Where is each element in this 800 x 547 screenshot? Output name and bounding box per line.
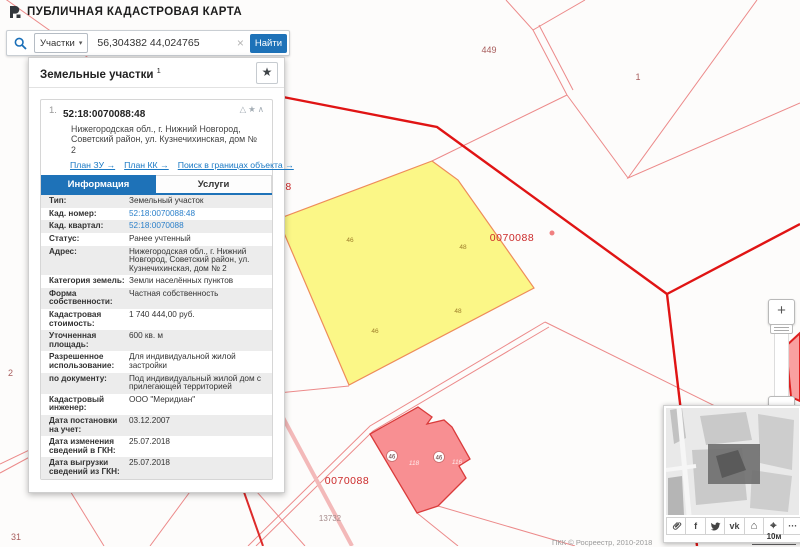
row-label: Кад. номер: <box>41 209 127 220</box>
row-value: 25.07.2018 <box>127 458 272 477</box>
star-icon[interactable]: ★ <box>248 104 258 114</box>
results-count: 1 <box>157 66 161 75</box>
row-label: Кадастровая стоимость: <box>41 310 127 329</box>
row-value: Для индивидуальной жилой застройки <box>127 352 272 371</box>
table-row: Кад. квартал:52:18:0070088 <box>41 220 272 233</box>
table-row: Уточненная площадь:600 кв. м <box>41 330 272 351</box>
building-number-label: 118 <box>409 460 420 467</box>
result-address: Нижегородская обл., г. Нижний Новгород, … <box>71 124 260 155</box>
result-index: 1. <box>49 105 57 116</box>
search-within-object-link[interactable]: Поиск в границах объекта → <box>178 160 294 170</box>
map-label-point: 48 <box>454 308 462 315</box>
row-value: 25.07.2018 <box>127 437 272 456</box>
table-row: Дата постановки на учет:03.12.2007 <box>41 415 272 436</box>
building-number-label: 116 <box>452 459 463 466</box>
map-label: 13732 <box>319 514 342 523</box>
map-label: 449 <box>481 45 496 55</box>
parcel-info-table: Тип:Земельный участок Кад. номер:52:18:0… <box>41 195 272 478</box>
map-label-point: 48 <box>459 244 467 251</box>
table-row: Дата выгрузки сведений из ГКН:25.07.2018 <box>41 457 272 478</box>
row-value: Под индивидуальный жилой дом с прилегающ… <box>127 374 272 393</box>
result-cad-number: 52:18:0070088:48 <box>63 109 145 120</box>
table-row: Статус:Ранее учтенный <box>41 233 272 246</box>
minimap: f vk ⌂ ⌖ ··· <box>663 405 800 543</box>
results-panel: Земельные участки 1 ★ 1. 52:18:0070088:4… <box>28 57 285 493</box>
table-row: Кадастровый инженер:ООО "Меридиан" <box>41 394 272 415</box>
row-value: 600 кв. м <box>127 331 272 350</box>
row-label: Категория земель: <box>41 276 127 287</box>
row-value: Ранее учтенный <box>127 234 272 245</box>
map-scale: 10м <box>752 532 796 545</box>
zoom-slider-handle[interactable] <box>770 324 793 334</box>
table-row: Тип:Земельный участок <box>41 195 272 208</box>
search-submit-button[interactable]: Найти <box>250 34 287 53</box>
favorites-button[interactable]: ★ <box>256 62 278 84</box>
row-label: Кад. квартал: <box>41 221 127 232</box>
twitter-icon[interactable] <box>705 517 725 535</box>
search-category-label: Участки <box>40 38 75 49</box>
zoom-slider-track[interactable] <box>774 324 789 400</box>
plan-kk-link[interactable]: План КК → <box>124 160 169 170</box>
warning-icon[interactable]: △ <box>240 104 249 114</box>
link-icon[interactable] <box>666 517 686 535</box>
map-point-marker <box>550 231 555 236</box>
table-row: Разрешенное использование:Для индивидуал… <box>41 351 272 372</box>
row-value-link[interactable]: 52:18:0070088:48 <box>127 209 272 220</box>
row-value: Земли населённых пунктов <box>127 276 272 287</box>
map-label: 1 <box>635 72 640 82</box>
row-label: Разрешенное использование: <box>41 352 127 371</box>
facebook-icon[interactable]: f <box>685 517 705 535</box>
row-label: Дата постановки на учет: <box>41 416 127 435</box>
row-label: Уточненная площадь: <box>41 331 127 350</box>
parcel-card-header: 1. 52:18:0070088:48 △★∧ Нижегородская об… <box>41 100 272 170</box>
tab-information[interactable]: Информация <box>41 175 156 193</box>
map-label-point: 46 <box>371 328 379 335</box>
search-icon[interactable] <box>14 37 27 50</box>
map-label-quarter: 0070088 <box>325 475 369 487</box>
row-label: по документу: <box>41 374 127 393</box>
row-value-link[interactable]: 52:18:0070088 <box>127 221 272 232</box>
vk-icon[interactable]: vk <box>724 517 744 535</box>
map-label: 31 <box>11 532 21 542</box>
plan-zu-link[interactable]: План ЗУ → <box>70 160 115 170</box>
result-links: План ЗУ → План КК → Поиск в границах объ… <box>70 160 262 170</box>
row-label: Дата изменения сведений в ГКН: <box>41 437 127 456</box>
search-category-dropdown[interactable]: Участки ▾ <box>34 33 88 53</box>
parcel-result-card: 1. 52:18:0070088:48 △★∧ Нижегородская об… <box>40 99 273 480</box>
app-header: ПУБЛИЧНАЯ КАДАСТРОВАЯ КАРТА <box>8 5 242 19</box>
row-label: Дата выгрузки сведений из ГКН: <box>41 458 127 477</box>
row-label: Тип: <box>41 196 127 207</box>
results-panel-header: Земельные участки 1 ★ <box>29 58 284 88</box>
row-label: Кадастровый инженер: <box>41 395 127 414</box>
result-header-icons: △★∧ <box>240 104 266 115</box>
tab-services[interactable]: Услуги <box>156 175 272 193</box>
row-value: ООО "Меридиан" <box>127 395 272 414</box>
table-row: Дата изменения сведений в ГКН:25.07.2018 <box>41 436 272 457</box>
search-bar: Участки ▾ × Найти <box>6 30 290 56</box>
zoom-in-button[interactable]: + <box>768 299 795 325</box>
table-row: по документу:Под индивидуальный жилой до… <box>41 373 272 394</box>
row-label: Форма собственности: <box>41 289 127 308</box>
scale-bar <box>752 544 796 545</box>
row-value: 1 740 444,00 руб. <box>127 310 272 329</box>
scale-label: 10м <box>752 532 796 541</box>
row-label: Адрес: <box>41 247 127 275</box>
row-value: Нижегородская обл., г. Нижний Новгород, … <box>127 247 272 275</box>
results-panel-title: Земельные участки 1 <box>40 66 161 81</box>
row-value: 03.12.2007 <box>127 416 272 435</box>
minimap-canvas[interactable] <box>666 408 799 515</box>
cadastral-map-app: 449 1 88 0070088 0070088 46 48 48 46 46 … <box>0 0 800 546</box>
building-badge-label: 46 <box>389 455 396 461</box>
map-label-point: 46 <box>346 237 354 244</box>
row-label: Статус: <box>41 234 127 245</box>
collapse-icon[interactable]: ∧ <box>258 104 266 114</box>
row-value: Земельный участок <box>127 196 272 207</box>
result-tabs: Информация Услуги <box>41 175 272 195</box>
map-label: 2 <box>8 368 13 378</box>
search-input[interactable] <box>95 36 231 50</box>
map-label-quarter: 0070088 <box>490 232 534 244</box>
table-row: Кад. номер:52:18:0070088:48 <box>41 208 272 221</box>
app-logo-icon <box>8 5 22 19</box>
row-value: Частная собственность <box>127 289 272 308</box>
table-row: Кадастровая стоимость:1 740 444,00 руб. <box>41 309 272 330</box>
table-row: Адрес:Нижегородская обл., г. Нижний Новг… <box>41 246 272 276</box>
table-row: Категория земель:Земли населённых пункто… <box>41 275 272 288</box>
table-row: Форма собственности:Частная собственност… <box>41 288 272 309</box>
app-title: ПУБЛИЧНАЯ КАДАСТРОВАЯ КАРТА <box>27 6 242 18</box>
building-badge-label: 46 <box>436 456 443 462</box>
chevron-down-icon: ▾ <box>79 39 83 47</box>
clear-icon[interactable]: × <box>237 37 244 49</box>
